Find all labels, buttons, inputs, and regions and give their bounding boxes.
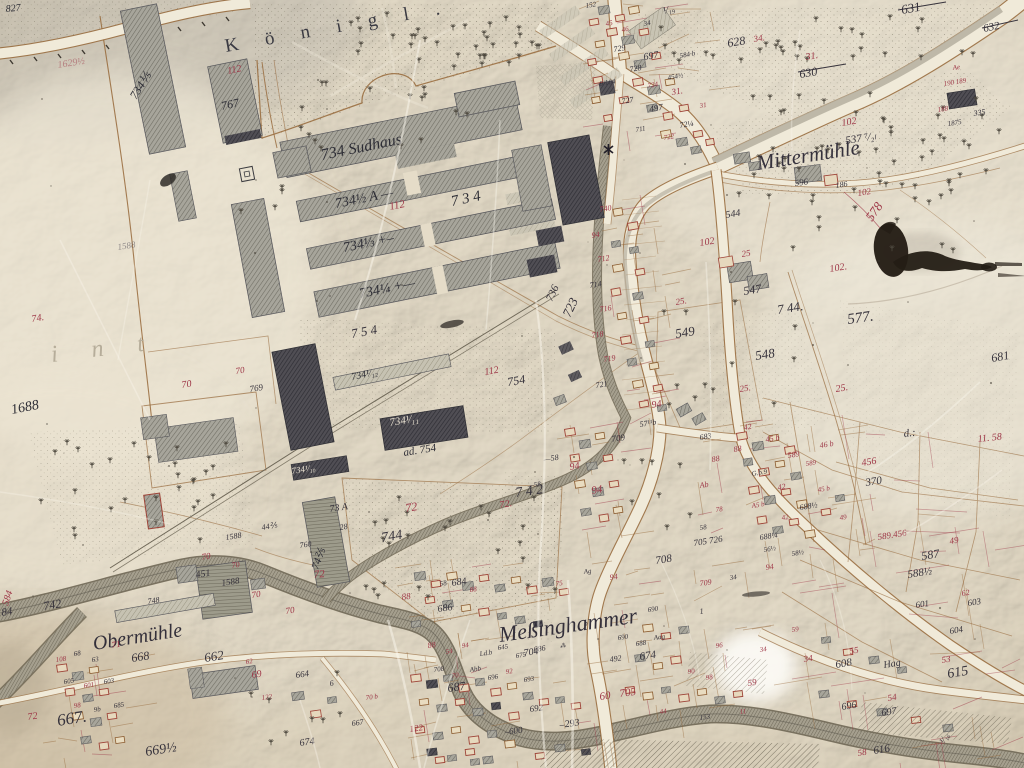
svg-text:25.: 25.	[835, 382, 849, 395]
svg-text:25.: 25.	[739, 382, 752, 394]
svg-text:589: 589	[787, 449, 800, 460]
svg-text:587: 587	[920, 546, 941, 563]
svg-text:31: 31	[698, 101, 707, 110]
svg-text:684: 684	[451, 576, 467, 589]
svg-text:719: 719	[603, 353, 616, 364]
svg-text:675: 675	[515, 651, 527, 660]
svg-text:60: 60	[599, 689, 612, 702]
svg-text:34: 34	[728, 573, 738, 582]
svg-text:88: 88	[733, 444, 742, 454]
svg-text:69: 69	[251, 669, 262, 681]
svg-text:714: 714	[589, 279, 602, 290]
svg-text:690: 690	[617, 633, 629, 642]
svg-text:547: 547	[742, 281, 763, 298]
svg-text:94: 94	[591, 230, 600, 240]
svg-text:688: 688	[635, 639, 647, 648]
svg-text:Ag: Ag	[582, 567, 592, 576]
svg-text:668: 668	[130, 648, 150, 665]
svg-text:492: 492	[609, 653, 622, 664]
svg-text:708: 708	[433, 665, 445, 674]
svg-text:31.: 31.	[804, 50, 819, 63]
svg-text:664: 664	[295, 668, 310, 680]
svg-text:62: 62	[961, 588, 970, 598]
svg-text:451: 451	[195, 568, 212, 581]
svg-text:601: 601	[915, 598, 930, 610]
svg-text:88: 88	[711, 454, 720, 464]
svg-text:153: 153	[699, 713, 711, 722]
svg-text:72: 72	[27, 711, 39, 723]
svg-text:28: 28	[339, 522, 348, 532]
svg-text:696: 696	[841, 700, 858, 713]
svg-text:74.: 74.	[31, 312, 45, 325]
svg-text:11: 11	[739, 707, 747, 716]
svg-text:72.: 72.	[499, 498, 513, 511]
svg-text:601: 601	[83, 681, 95, 690]
svg-text:122: 122	[409, 722, 424, 734]
svg-text:705: 705	[619, 686, 638, 700]
svg-text:94: 94	[569, 461, 581, 473]
svg-text:596: 596	[794, 176, 809, 188]
svg-text:589: 589	[805, 458, 817, 468]
svg-text:605: 605	[63, 677, 75, 686]
svg-text:690: 690	[647, 605, 659, 614]
svg-text:685: 685	[113, 701, 125, 710]
svg-text:742: 742	[42, 596, 62, 613]
svg-text:72: 72	[404, 499, 418, 515]
svg-text:34.: 34.	[752, 32, 766, 44]
svg-text:721: 721	[595, 379, 608, 390]
svg-text:709: 709	[699, 577, 712, 588]
svg-text:603: 603	[103, 677, 115, 686]
svg-text:686: 686	[437, 602, 453, 615]
svg-text:740: 740	[599, 203, 612, 214]
svg-text:693: 693	[523, 675, 535, 684]
svg-text:548: 548	[754, 345, 776, 363]
svg-text:70: 70	[231, 560, 240, 570]
svg-text:d.:: d.:	[903, 427, 916, 440]
svg-text:712: 712	[597, 253, 610, 264]
svg-text:748: 748	[147, 595, 160, 606]
svg-text:42: 42	[777, 482, 786, 492]
svg-text:674: 674	[639, 649, 658, 663]
svg-text:662: 662	[203, 647, 225, 665]
svg-text:188: 188	[937, 104, 949, 114]
svg-text:711: 711	[635, 124, 646, 134]
svg-text:94: 94	[651, 399, 663, 411]
svg-text:Ae: Ae	[951, 63, 961, 72]
svg-text:102: 102	[699, 236, 716, 249]
svg-text:718: 718	[591, 329, 604, 340]
svg-text:72: 72	[313, 568, 326, 581]
svg-text:108: 108	[55, 655, 67, 664]
svg-text:25.: 25.	[675, 295, 688, 307]
svg-text:549: 549	[674, 323, 696, 341]
svg-text:544: 544	[725, 208, 742, 221]
svg-text:94: 94	[609, 572, 618, 582]
svg-text:94: 94	[765, 562, 774, 572]
svg-text:34: 34	[758, 645, 768, 654]
svg-text:186: 186	[835, 179, 848, 190]
svg-text:Ab: Ab	[698, 480, 709, 490]
svg-text:42: 42	[743, 422, 752, 432]
svg-text:760: 760	[299, 539, 312, 550]
svg-text:696: 696	[487, 673, 499, 682]
svg-text:102: 102	[841, 116, 858, 129]
svg-text:122: 122	[261, 693, 273, 702]
svg-text:667: 667	[351, 717, 365, 728]
svg-text:630: 630	[798, 64, 818, 81]
svg-text:645: 645	[497, 643, 509, 652]
svg-text:71: 71	[111, 639, 121, 650]
svg-text:88: 88	[427, 640, 436, 650]
svg-text:827: 827	[5, 2, 22, 15]
svg-text:34: 34	[802, 653, 814, 664]
svg-text:628: 628	[726, 33, 746, 50]
svg-text:716: 716	[599, 303, 612, 314]
svg-text:70: 70	[181, 379, 193, 391]
svg-text:31.: 31.	[670, 85, 684, 97]
